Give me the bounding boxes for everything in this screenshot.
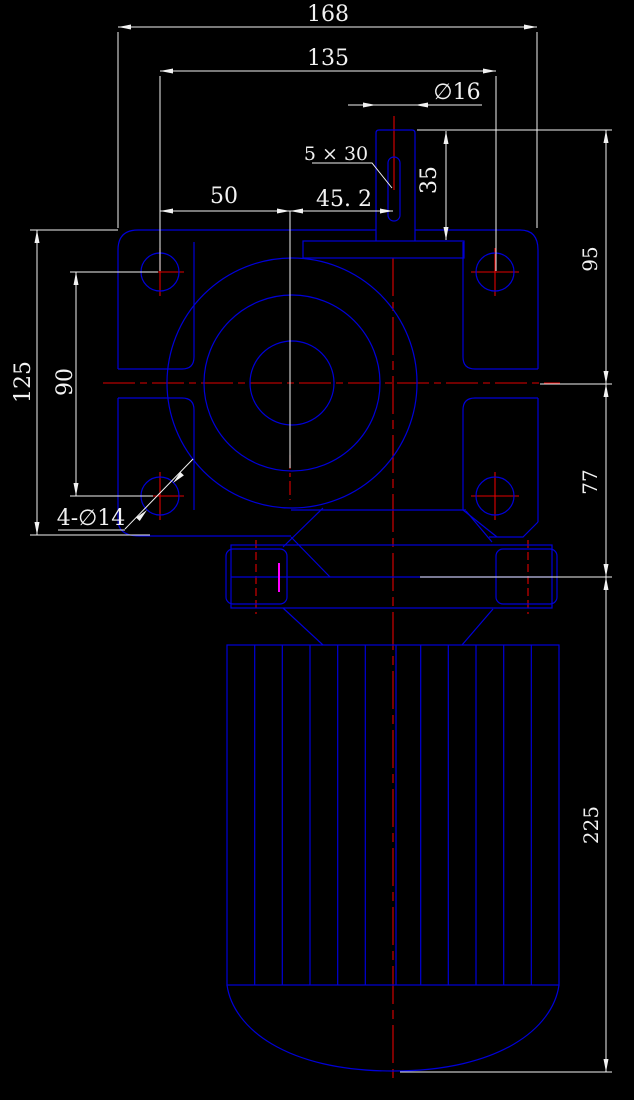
dim-shaft-diameter-label: ∅16 xyxy=(433,80,480,105)
dim-shaft-length-label: 35 xyxy=(417,166,442,194)
flange-side-notches xyxy=(118,242,538,510)
dim-overall-width-label: 168 xyxy=(307,2,349,27)
keyway-leader xyxy=(312,163,392,188)
dim-keyway-label: 5 × 30 xyxy=(304,143,368,165)
output-shaft xyxy=(376,130,415,241)
bolt-holes xyxy=(141,253,514,515)
dimension-labels: 168 135 ∅16 5 × 30 50 45. 2 35 95 77 225… xyxy=(11,2,603,844)
holes-leader xyxy=(125,459,193,529)
dim-upper-height-label: 95 xyxy=(578,246,602,271)
dim-mounting-holes-label: 4-∅14 xyxy=(57,506,126,531)
dim-50-label: 50 xyxy=(210,184,238,209)
dimension-arrows xyxy=(35,25,609,1073)
dim-hole-span-height-label: 90 xyxy=(53,368,78,396)
neck-left xyxy=(283,608,323,645)
dim-hole-span-width-label: 135 xyxy=(307,46,349,71)
bearing-collar xyxy=(226,545,557,645)
dim-flange-height-label: 125 xyxy=(11,361,36,403)
dim-mid-height-label: 77 xyxy=(578,469,602,494)
top-boss-plate xyxy=(303,241,464,258)
neck-right xyxy=(462,609,493,645)
dim-45-2-label: 45. 2 xyxy=(316,187,372,212)
geometry xyxy=(118,130,559,1071)
cad-canvas: 168 135 ∅16 5 × 30 50 45. 2 35 95 77 225… xyxy=(0,0,634,1100)
centerlines xyxy=(103,116,560,1079)
dim-motor-length-label: 225 xyxy=(579,806,603,844)
bell-transition xyxy=(283,508,497,577)
